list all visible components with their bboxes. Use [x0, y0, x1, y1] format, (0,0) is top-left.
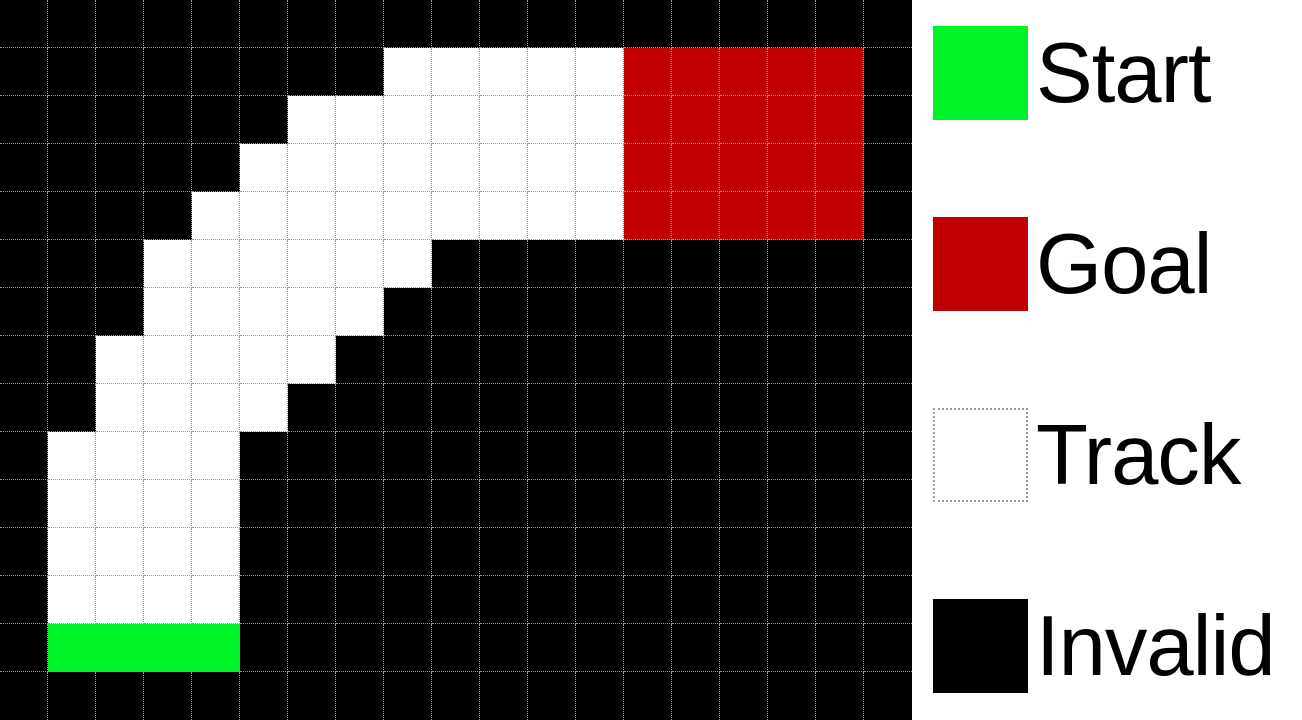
grid-cell-track — [480, 144, 528, 192]
grid-cell-track — [96, 336, 144, 384]
grid-cell-invalid — [0, 384, 48, 432]
grid-cell-track — [240, 336, 288, 384]
grid-cell-invalid — [576, 528, 624, 576]
grid-cell-invalid — [480, 672, 528, 720]
grid-cell-invalid — [768, 576, 816, 624]
grid-cell-invalid — [336, 624, 384, 672]
grid-cell-goal — [816, 96, 864, 144]
grid-cell-invalid — [192, 672, 240, 720]
grid-cell-invalid — [0, 48, 48, 96]
grid-cell-invalid — [144, 144, 192, 192]
grid-cell-track — [240, 144, 288, 192]
grid-cell-invalid — [144, 192, 192, 240]
start-swatch — [933, 26, 1028, 120]
grid-cell-invalid — [576, 576, 624, 624]
grid-cell-invalid — [720, 432, 768, 480]
grid-cell-track — [48, 576, 96, 624]
grid-cell-invalid — [240, 528, 288, 576]
legend-item-start: Start — [933, 26, 1302, 120]
grid-cell-invalid — [816, 0, 864, 48]
grid-cell-invalid — [432, 384, 480, 432]
grid-cell-goal — [720, 48, 768, 96]
grid-cell-invalid — [432, 240, 480, 288]
grid-cell-track — [336, 144, 384, 192]
grid-cell-invalid — [528, 240, 576, 288]
grid-cell-invalid — [0, 0, 48, 48]
grid-cell-track — [528, 48, 576, 96]
grid-cell-invalid — [672, 672, 720, 720]
grid-cell-invalid — [480, 528, 528, 576]
grid-cell-invalid — [336, 0, 384, 48]
grid-cell-track — [336, 192, 384, 240]
grid-cell-invalid — [240, 672, 288, 720]
grid-cell-track — [96, 480, 144, 528]
grid-cell-invalid — [768, 336, 816, 384]
grid-cell-invalid — [288, 672, 336, 720]
grid-cell-invalid — [576, 480, 624, 528]
grid-cell-track — [192, 336, 240, 384]
grid-cell-invalid — [576, 0, 624, 48]
grid-cell-invalid — [528, 432, 576, 480]
grid-cell-invalid — [48, 672, 96, 720]
grid-cell-invalid — [528, 576, 576, 624]
grid-cell-invalid — [720, 336, 768, 384]
grid-cell-invalid — [864, 624, 912, 672]
grid-cell-invalid — [720, 288, 768, 336]
start-label: Start — [1036, 31, 1211, 116]
grid-cell-invalid — [672, 576, 720, 624]
grid-cell-track — [576, 192, 624, 240]
grid-cell-invalid — [864, 240, 912, 288]
grid-cell-invalid — [0, 672, 48, 720]
grid-cell-invalid — [96, 0, 144, 48]
grid-cell-track — [432, 48, 480, 96]
grid-cell-invalid — [864, 288, 912, 336]
grid-cell-invalid — [720, 384, 768, 432]
grid-cell-invalid — [624, 528, 672, 576]
grid-cell-invalid — [48, 288, 96, 336]
grid-cell-invalid — [768, 240, 816, 288]
grid-cell-invalid — [720, 240, 768, 288]
grid-cell-goal — [624, 48, 672, 96]
grid-cell-invalid — [480, 480, 528, 528]
grid-cell-invalid — [768, 0, 816, 48]
grid-cell-invalid — [720, 576, 768, 624]
grid-cell-track — [576, 96, 624, 144]
grid-cell-invalid — [624, 0, 672, 48]
grid-cell-goal — [672, 144, 720, 192]
grid-cell-invalid — [192, 96, 240, 144]
grid-cell-invalid — [672, 624, 720, 672]
grid-cell-track — [432, 192, 480, 240]
grid-cell-track — [144, 336, 192, 384]
grid-cell-track — [528, 192, 576, 240]
grid-cell-start — [48, 624, 96, 672]
legend-panel: Start Goal Track Invalid — [912, 0, 1302, 720]
grid-cell-invalid — [432, 480, 480, 528]
grid-cell-track — [288, 240, 336, 288]
grid-cell-invalid — [480, 0, 528, 48]
grid-cell-invalid — [0, 480, 48, 528]
grid-cell-invalid — [528, 0, 576, 48]
grid-cell-track — [576, 48, 624, 96]
grid-cell-invalid — [576, 240, 624, 288]
grid-cell-invalid — [768, 672, 816, 720]
grid-cell-invalid — [432, 432, 480, 480]
grid-cell-track — [144, 288, 192, 336]
grid-cell-invalid — [144, 0, 192, 48]
grid-cell-invalid — [672, 336, 720, 384]
grid-cell-track — [192, 480, 240, 528]
grid-cell-invalid — [816, 336, 864, 384]
grid-cell-invalid — [720, 480, 768, 528]
grid-cell-invalid — [48, 240, 96, 288]
grid-cell-invalid — [144, 96, 192, 144]
grid-cell-goal — [672, 48, 720, 96]
grid-cell-invalid — [720, 0, 768, 48]
grid-cell-track — [480, 192, 528, 240]
grid-cell-track — [144, 240, 192, 288]
grid-cell-goal — [672, 96, 720, 144]
goal-swatch — [933, 217, 1028, 311]
grid-cell-invalid — [768, 384, 816, 432]
grid-cell-invalid — [48, 48, 96, 96]
grid-cell-invalid — [864, 432, 912, 480]
grid-cell-track — [432, 96, 480, 144]
grid-cell-track — [240, 240, 288, 288]
grid-cell-invalid — [768, 288, 816, 336]
grid-cell-track — [480, 48, 528, 96]
grid-cell-invalid — [576, 672, 624, 720]
grid-cell-start — [144, 624, 192, 672]
grid-cell-invalid — [240, 48, 288, 96]
grid-cell-track — [384, 192, 432, 240]
grid-cell-invalid — [432, 336, 480, 384]
grid-cell-invalid — [384, 336, 432, 384]
grid-cell-invalid — [288, 528, 336, 576]
grid-cell-goal — [768, 192, 816, 240]
grid-cell-track — [192, 384, 240, 432]
grid-cell-invalid — [624, 240, 672, 288]
grid-cell-goal — [816, 48, 864, 96]
grid-cell-invalid — [864, 0, 912, 48]
grid-cell-track — [336, 288, 384, 336]
grid-cell-invalid — [336, 480, 384, 528]
grid-cell-invalid — [864, 336, 912, 384]
grid-cell-track — [192, 288, 240, 336]
grid-cell-invalid — [528, 528, 576, 576]
grid-cell-invalid — [240, 432, 288, 480]
grid-cell-invalid — [528, 288, 576, 336]
grid-cell-track — [144, 480, 192, 528]
grid-cell-invalid — [864, 96, 912, 144]
grid-cell-invalid — [672, 432, 720, 480]
grid-cell-track — [384, 240, 432, 288]
grid-cell-invalid — [864, 672, 912, 720]
grid-cell-invalid — [672, 480, 720, 528]
grid-cell-invalid — [528, 624, 576, 672]
grid-cell-invalid — [816, 432, 864, 480]
grid-cell-track — [96, 576, 144, 624]
grid-cell-invalid — [336, 48, 384, 96]
grid-cell-invalid — [864, 384, 912, 432]
grid-cell-invalid — [288, 48, 336, 96]
grid-cell-invalid — [864, 192, 912, 240]
track-grid — [0, 0, 912, 720]
grid-cell-track — [384, 48, 432, 96]
grid-cell-invalid — [288, 624, 336, 672]
grid-cell-goal — [624, 96, 672, 144]
grid-cell-invalid — [192, 48, 240, 96]
grid-cell-invalid — [672, 288, 720, 336]
grid-cell-invalid — [48, 0, 96, 48]
grid-cell-invalid — [864, 48, 912, 96]
grid-cell-invalid — [192, 144, 240, 192]
grid-cell-track — [384, 96, 432, 144]
grid-cell-invalid — [624, 624, 672, 672]
grid-cell-invalid — [816, 624, 864, 672]
grid-cell-invalid — [48, 96, 96, 144]
grid-cell-track — [192, 576, 240, 624]
grid-cell-invalid — [768, 480, 816, 528]
grid-cell-start — [192, 624, 240, 672]
grid-cell-invalid — [864, 576, 912, 624]
grid-cell-invalid — [384, 624, 432, 672]
grid-cell-invalid — [384, 432, 432, 480]
grid-cell-invalid — [96, 48, 144, 96]
grid-cell-goal — [768, 96, 816, 144]
grid-cell-invalid — [816, 288, 864, 336]
grid-cell-invalid — [480, 384, 528, 432]
grid-cell-track — [144, 528, 192, 576]
grid-cell-invalid — [624, 480, 672, 528]
grid-cell-invalid — [0, 192, 48, 240]
grid-cell-track — [480, 96, 528, 144]
grid-cell-invalid — [288, 0, 336, 48]
grid-cell-invalid — [432, 288, 480, 336]
grid-cell-invalid — [672, 240, 720, 288]
grid-cell-invalid — [144, 672, 192, 720]
grid-cell-invalid — [672, 0, 720, 48]
grid-cell-track — [288, 192, 336, 240]
grid-cell-invalid — [480, 336, 528, 384]
grid-cell-invalid — [384, 0, 432, 48]
grid-cell-invalid — [192, 0, 240, 48]
grid-cell-invalid — [768, 432, 816, 480]
grid-cell-track — [336, 240, 384, 288]
grid-cell-goal — [720, 192, 768, 240]
grid-cell-track — [48, 432, 96, 480]
grid-cell-invalid — [816, 480, 864, 528]
grid-cell-invalid — [336, 432, 384, 480]
grid-cell-invalid — [96, 672, 144, 720]
grid-cell-track — [528, 144, 576, 192]
grid-cell-invalid — [480, 624, 528, 672]
grid-cell-invalid — [480, 576, 528, 624]
grid-cell-track — [192, 528, 240, 576]
grid-cell-start — [96, 624, 144, 672]
grid-cell-track — [144, 384, 192, 432]
grid-cell-track — [288, 336, 336, 384]
grid-cell-invalid — [384, 672, 432, 720]
grid-cell-invalid — [432, 672, 480, 720]
grid-cell-invalid — [432, 528, 480, 576]
grid-cell-invalid — [48, 192, 96, 240]
grid-cell-invalid — [336, 528, 384, 576]
grid-cell-invalid — [528, 336, 576, 384]
grid-cell-track — [144, 432, 192, 480]
grid-cell-invalid — [816, 672, 864, 720]
grid-cell-invalid — [288, 480, 336, 528]
grid-cell-track — [288, 288, 336, 336]
grid-cell-invalid — [816, 384, 864, 432]
grid-cell-invalid — [240, 480, 288, 528]
grid-cell-goal — [816, 192, 864, 240]
grid-cell-invalid — [0, 240, 48, 288]
grid-cell-track — [48, 528, 96, 576]
grid-cell-invalid — [384, 528, 432, 576]
grid-cell-invalid — [480, 240, 528, 288]
grid-cell-invalid — [384, 480, 432, 528]
grid-cell-track — [288, 144, 336, 192]
grid-cell-invalid — [768, 624, 816, 672]
grid-cell-invalid — [624, 432, 672, 480]
invalid-label: Invalid — [1036, 604, 1275, 689]
grid-cell-invalid — [624, 384, 672, 432]
grid-cell-invalid — [864, 144, 912, 192]
grid-cell-track — [48, 480, 96, 528]
grid-cell-invalid — [480, 288, 528, 336]
grid-cell-goal — [672, 192, 720, 240]
grid-cell-invalid — [48, 144, 96, 192]
grid-cell-goal — [624, 192, 672, 240]
grid-cell-invalid — [288, 384, 336, 432]
legend-item-goal: Goal — [933, 217, 1302, 311]
grid-cell-track — [240, 288, 288, 336]
grid-cell-invalid — [144, 48, 192, 96]
grid-cell-track — [96, 384, 144, 432]
grid-cell-invalid — [672, 384, 720, 432]
grid-cell-goal — [624, 144, 672, 192]
grid-cell-track — [192, 432, 240, 480]
grid-cell-track — [192, 240, 240, 288]
grid-cell-invalid — [528, 672, 576, 720]
grid-cell-invalid — [96, 96, 144, 144]
grid-cell-track — [144, 576, 192, 624]
grid-cell-invalid — [96, 192, 144, 240]
grid-cell-invalid — [240, 0, 288, 48]
grid-cell-goal — [768, 48, 816, 96]
grid-cell-invalid — [864, 480, 912, 528]
grid-cell-invalid — [336, 576, 384, 624]
grid-cell-track — [240, 192, 288, 240]
grid-cell-invalid — [624, 336, 672, 384]
grid-cell-invalid — [96, 288, 144, 336]
grid-cell-invalid — [0, 624, 48, 672]
track-swatch — [933, 408, 1028, 502]
grid-cell-invalid — [576, 432, 624, 480]
grid-cell-invalid — [624, 576, 672, 624]
grid-cell-track — [288, 96, 336, 144]
grid-cell-invalid — [624, 288, 672, 336]
grid-cell-invalid — [0, 576, 48, 624]
grid-cell-invalid — [384, 576, 432, 624]
grid-cell-invalid — [288, 576, 336, 624]
grid-cell-invalid — [336, 672, 384, 720]
grid-cell-invalid — [480, 432, 528, 480]
grid-cell-invalid — [576, 384, 624, 432]
grid-cell-invalid — [240, 624, 288, 672]
grid-cell-goal — [720, 144, 768, 192]
grid-cell-invalid — [864, 528, 912, 576]
grid-cell-invalid — [384, 288, 432, 336]
grid-cell-invalid — [96, 240, 144, 288]
grid-cell-invalid — [720, 528, 768, 576]
grid-cell-track — [240, 384, 288, 432]
grid-cell-invalid — [768, 528, 816, 576]
grid-cell-invalid — [816, 528, 864, 576]
grid-cell-invalid — [816, 240, 864, 288]
grid-cell-invalid — [576, 624, 624, 672]
grid-cell-invalid — [576, 288, 624, 336]
grid-cell-invalid — [816, 576, 864, 624]
grid-cell-invalid — [336, 384, 384, 432]
grid-cell-invalid — [288, 432, 336, 480]
grid-cell-invalid — [96, 144, 144, 192]
grid-cell-invalid — [0, 144, 48, 192]
grid-cell-goal — [720, 96, 768, 144]
grid-cell-goal — [768, 144, 816, 192]
grid-cell-invalid — [432, 624, 480, 672]
grid-cell-track — [528, 96, 576, 144]
grid-cell-invalid — [0, 336, 48, 384]
grid-cell-invalid — [0, 96, 48, 144]
grid-cell-track — [432, 144, 480, 192]
legend-item-invalid: Invalid — [933, 599, 1302, 693]
grid-cell-invalid — [576, 336, 624, 384]
grid-cell-invalid — [0, 528, 48, 576]
grid-cell-invalid — [432, 576, 480, 624]
grid-cell-track — [96, 528, 144, 576]
track-label: Track — [1036, 413, 1240, 498]
grid-cell-goal — [816, 144, 864, 192]
grid-cell-invalid — [432, 0, 480, 48]
grid-cell-invalid — [528, 480, 576, 528]
grid-cell-invalid — [720, 624, 768, 672]
grid-cell-invalid — [384, 384, 432, 432]
invalid-swatch — [933, 599, 1028, 693]
grid-cell-track — [192, 192, 240, 240]
grid-cell-invalid — [528, 384, 576, 432]
grid-cell-track — [384, 144, 432, 192]
goal-label: Goal — [1036, 222, 1212, 307]
grid-cell-invalid — [336, 336, 384, 384]
grid-cell-invalid — [240, 576, 288, 624]
grid-cell-track — [576, 144, 624, 192]
grid-cell-invalid — [240, 96, 288, 144]
grid-cell-invalid — [672, 528, 720, 576]
grid-cell-invalid — [0, 288, 48, 336]
grid-cell-track — [336, 96, 384, 144]
grid-cell-invalid — [624, 672, 672, 720]
grid-cell-invalid — [720, 672, 768, 720]
legend-item-track: Track — [933, 408, 1302, 502]
grid-cell-track — [96, 432, 144, 480]
grid-cell-invalid — [48, 384, 96, 432]
grid-cell-invalid — [48, 336, 96, 384]
grid-cell-invalid — [0, 432, 48, 480]
